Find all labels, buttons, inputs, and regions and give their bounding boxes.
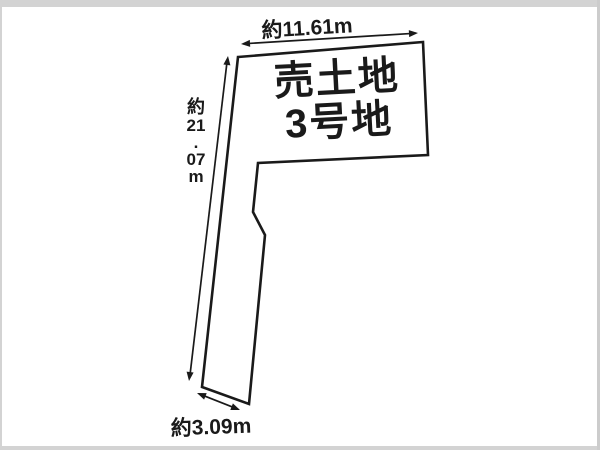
- arrowhead-down: [187, 372, 194, 381]
- dimension-label-left-seg2: 21: [180, 117, 212, 134]
- dimension-label-bottom: 約3.09m: [152, 409, 271, 443]
- dimension-label-left-seg4: 07: [180, 151, 212, 168]
- dimension-label-left: 約 21 . 07 m: [180, 97, 212, 185]
- frame-top-edge: [0, 0, 600, 7]
- arrowhead-left: [241, 40, 250, 47]
- frame-left-edge: [0, 0, 2, 450]
- land-plot-diagram: 売土地 3号地 約11.61m 約 21 . 07 m 約3.09m: [0, 0, 600, 450]
- arrowhead-left: [197, 393, 207, 400]
- dimension-label-left-seg5: m: [180, 168, 212, 185]
- dimension-label-left-seg1: 約: [180, 97, 212, 117]
- parcel-title: 売土地 3号地: [244, 53, 432, 149]
- arrowhead-right: [409, 30, 418, 37]
- arrowhead-up: [223, 56, 230, 65]
- dimension-label-left-seg3: .: [180, 134, 212, 151]
- frame-bottom-edge: [0, 446, 600, 450]
